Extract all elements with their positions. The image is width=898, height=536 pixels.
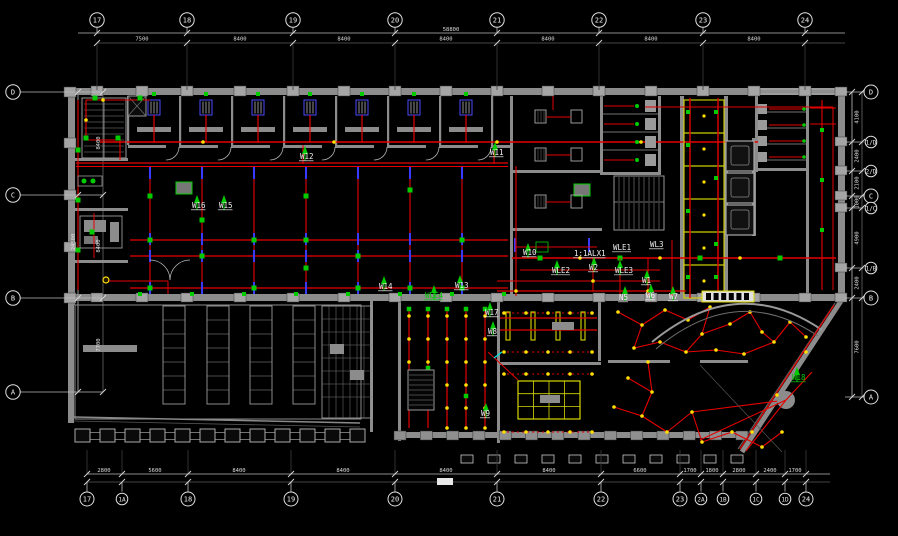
elevator-car (726, 173, 754, 203)
svg-text:58800: 58800 (443, 27, 460, 33)
floor-plan-canvas[interactable]: 1718192021222324171A1819202122232A1B1C1D… (0, 0, 898, 536)
svg-text:2/D: 2/D (866, 168, 877, 175)
svg-text:4900: 4900 (855, 231, 861, 244)
circuit-label-W11: W11 (490, 148, 504, 157)
svg-text:2800: 2800 (732, 468, 745, 474)
svg-text:1000: 1000 (855, 195, 861, 208)
svg-text:1700: 1700 (788, 468, 801, 474)
svg-text:8400: 8400 (542, 468, 555, 474)
svg-text:1/B: 1/B (866, 265, 877, 272)
svg-text:8400: 8400 (337, 37, 350, 43)
circuit-label-WLE4: WLE4 (425, 291, 444, 300)
lower-hall (407, 307, 488, 430)
svg-text:20: 20 (391, 495, 399, 503)
svg-text:8400: 8400 (336, 468, 349, 474)
svg-text:B: B (11, 294, 15, 302)
ceiling-light-icon (103, 277, 109, 283)
svg-text:21: 21 (493, 495, 501, 503)
svg-text:C: C (11, 191, 15, 199)
circuit-label-W8: W8 (488, 327, 498, 336)
circuit-label-WLE3: WLE3 (615, 266, 633, 275)
svg-text:1D: 1D (781, 496, 789, 503)
svg-text:8400: 8400 (232, 468, 245, 474)
svg-text:6600: 6600 (633, 468, 646, 474)
svg-text:D: D (869, 88, 873, 96)
room-yellow-bars (500, 311, 597, 354)
svg-text:1C: 1C (752, 496, 760, 503)
circuit-label-WL3: WL3 (650, 240, 664, 249)
svg-text:2100: 2100 (855, 176, 861, 189)
circuit-label-W13: W13 (455, 281, 469, 290)
svg-text:2400: 2400 (855, 276, 861, 289)
circuit-label-N5: N5 (619, 293, 628, 302)
circuit-label-WLE1: WLE1 (613, 243, 631, 252)
svg-text:8400: 8400 (439, 37, 452, 43)
svg-text:1B: 1B (719, 496, 727, 503)
svg-text:19: 19 (287, 495, 295, 503)
svg-text:1700: 1700 (683, 468, 696, 474)
dimension-frame (78, 33, 862, 485)
circuit-label-W9: W9 (481, 409, 490, 418)
svg-text:8400: 8400 (96, 136, 102, 149)
svg-text:8400: 8400 (747, 37, 760, 43)
svg-text:B: B (869, 294, 873, 302)
svg-text:D: D (11, 88, 15, 96)
svg-text:8400: 8400 (644, 37, 657, 43)
svg-text:23: 23 (676, 495, 684, 503)
svg-text:1800: 1800 (705, 468, 718, 474)
svg-text:17: 17 (83, 495, 91, 503)
dimension-highlight (437, 478, 453, 485)
svg-text:2400: 2400 (763, 468, 776, 474)
svg-text:17: 17 (93, 16, 101, 24)
circuit-label-W15: W15 (219, 201, 233, 210)
elevator-car (726, 141, 754, 171)
circuit-label-W12: W12 (300, 152, 314, 161)
svg-text:8400: 8400 (541, 37, 554, 43)
elevator-car (726, 205, 754, 235)
svg-text:18: 18 (183, 16, 191, 24)
svg-text:24500: 24500 (71, 234, 77, 251)
circuit-label-W16: W16 (192, 201, 206, 210)
circuit-label-WLE2: WLE2 (552, 266, 570, 275)
svg-text:1A: 1A (118, 496, 126, 503)
circuit-label-W10: W10 (523, 248, 537, 257)
svg-text:8400: 8400 (233, 37, 246, 43)
svg-text:1/D: 1/D (866, 139, 877, 146)
top-office-band (100, 92, 766, 164)
svg-text:18: 18 (184, 495, 192, 503)
svg-text:24: 24 (801, 16, 809, 24)
service-core (497, 96, 836, 298)
svg-text:C: C (869, 192, 873, 200)
svg-text:7500: 7500 (135, 37, 148, 43)
svg-text:8400: 8400 (96, 239, 102, 252)
svg-text:7700: 7700 (96, 338, 102, 351)
cad-floor-plan[interactable]: 1718192021222324171A1819202122232A1B1C1D… (0, 0, 898, 536)
circuit-label-11ALX1: 1:1ALX1 (574, 249, 606, 258)
svg-text:8400: 8400 (439, 468, 452, 474)
svg-text:23: 23 (699, 16, 707, 24)
svg-text:22: 22 (595, 16, 603, 24)
svg-text:2800: 2800 (97, 468, 110, 474)
circuit-label-W2: W2 (589, 263, 598, 272)
svg-text:24: 24 (802, 495, 810, 503)
circuit-label-W6: W6 (646, 291, 656, 300)
svg-text:1/C: 1/C (866, 205, 877, 212)
circuit-label-W17: W17 (485, 308, 499, 317)
svg-text:7600: 7600 (855, 340, 861, 353)
circuit-label-W1: W1 (642, 276, 651, 285)
circuit-label-W14: W14 (379, 282, 393, 291)
entrance-lobby (612, 291, 834, 452)
svg-text:20: 20 (391, 16, 399, 24)
svg-text:2A: 2A (697, 496, 705, 503)
svg-text:2400: 2400 (855, 149, 861, 162)
svg-text:22: 22 (597, 495, 605, 503)
svg-text:4100: 4100 (855, 110, 861, 123)
left-wing (75, 305, 372, 419)
circuit-label-W18: W18 (792, 373, 806, 382)
svg-text:19: 19 (289, 16, 297, 24)
svg-text:21: 21 (493, 16, 501, 24)
svg-text:5600: 5600 (148, 468, 161, 474)
circuit-label-W7: W7 (669, 292, 678, 301)
